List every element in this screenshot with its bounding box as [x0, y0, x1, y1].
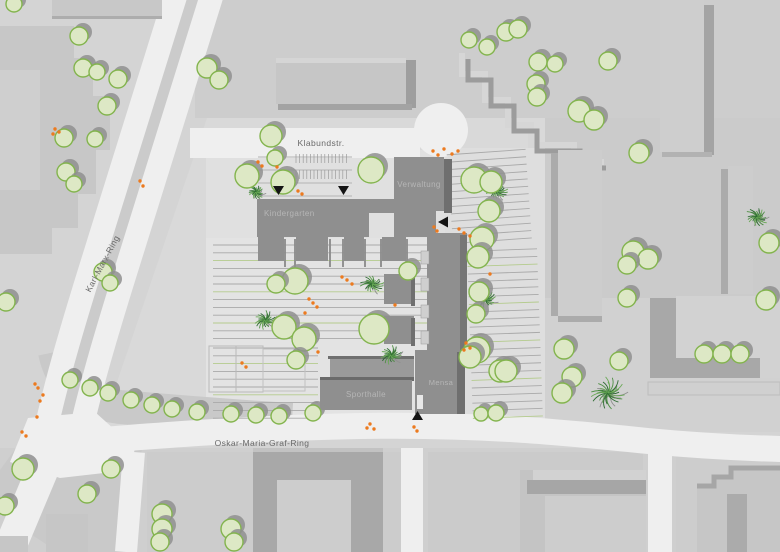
person-dot: [435, 229, 438, 232]
context-building-u-court: [277, 480, 351, 552]
person-dot: [393, 303, 396, 306]
person-dot: [368, 422, 371, 425]
person-dot: [38, 399, 41, 402]
context-building-south-right-wing: [727, 494, 747, 552]
person-dot: [457, 227, 460, 230]
site-plan-svg: Kindergarten Verwaltung Sporthalle Mensa…: [0, 0, 780, 552]
person-dot: [296, 189, 299, 192]
building-sporthalle-edge: [328, 356, 414, 359]
context-building-west-court: [0, 70, 40, 190]
person-dot: [20, 430, 23, 433]
building-label-sporthalle: Sporthalle: [346, 390, 386, 399]
person-dot: [138, 179, 141, 182]
person-dot: [311, 301, 314, 304]
person-dot: [51, 132, 54, 135]
person-dot: [345, 278, 348, 281]
context-building-top-left: [52, 0, 162, 16]
person-dot: [415, 429, 418, 432]
pavilion: [344, 237, 364, 261]
person-dot: [240, 361, 243, 364]
building-label-verwaltung: Verwaltung: [397, 180, 441, 189]
person-dot: [365, 426, 368, 429]
street-south-vertical-1: [401, 448, 423, 552]
person-dot: [41, 393, 44, 396]
context-building-south-mid-roofedge: [533, 470, 646, 480]
pavilion: [382, 237, 406, 261]
person-dot: [431, 149, 434, 152]
context-building-top-left-shadow: [52, 16, 162, 19]
building-verwaltung-sideface: [444, 159, 452, 213]
person-dot: [141, 184, 144, 187]
person-dot: [468, 346, 471, 349]
site-plan: Kindergarten Verwaltung Sporthalle Mensa…: [0, 0, 780, 552]
building-bridge: [350, 199, 396, 213]
person-dot: [488, 272, 491, 275]
context-building-sw-2: [0, 536, 28, 552]
context-building-u-roofedge: [253, 448, 383, 452]
building-mensa-entrance-recess: [417, 395, 423, 409]
context-building-north-slab: [276, 58, 406, 104]
context-building-north-slab-sideface: [406, 60, 416, 108]
street-klabundstr-turnaround: [414, 103, 468, 157]
person-dot: [244, 365, 247, 368]
person-dot: [300, 192, 303, 195]
person-dot: [36, 386, 39, 389]
person-dot: [33, 382, 36, 385]
person-dot: [24, 434, 27, 437]
person-dot: [260, 164, 263, 167]
person-dot: [53, 127, 56, 130]
context-building-north-slab-shadow: [278, 104, 412, 110]
person-dot: [412, 425, 415, 428]
street-label-klabundstr: Klabundstr.: [298, 138, 345, 148]
person-dot: [462, 231, 465, 234]
street-label-oskar-maria-graf-ring: Oskar-Maria-Graf-Ring: [215, 438, 310, 448]
context-building-south-mid-shadow: [527, 480, 646, 494]
person-dot: [372, 427, 375, 430]
context-building-mid-slab-shadow: [551, 153, 558, 316]
person-dot: [307, 297, 310, 300]
building-label-kindergarten: Kindergarten: [264, 209, 315, 218]
building-side-room-1-shadow: [411, 276, 415, 306]
person-dot: [340, 275, 343, 278]
pavilion: [258, 237, 284, 261]
person-dot: [57, 130, 60, 133]
context-terrace-wall-east: [648, 382, 780, 395]
person-dot: [468, 234, 471, 237]
context-building-right-slab-shadow: [721, 169, 728, 294]
context-building-mid-slab-bottom-shadow: [558, 316, 602, 322]
context-building-ne-slab-shadow: [704, 5, 714, 155]
building-side-room-2-shadow: [411, 318, 415, 346]
person-dot: [316, 350, 319, 353]
building-sporthalle-roofstep: [330, 356, 414, 380]
person-dot: [275, 165, 278, 168]
pavilion: [296, 237, 328, 261]
street-south-vertical-2: [648, 445, 672, 552]
person-dot: [450, 152, 453, 155]
building-label-mensa: Mensa: [429, 378, 454, 387]
person-dot: [35, 415, 38, 418]
person-dot: [303, 311, 306, 314]
person-dot: [256, 160, 259, 163]
person-dot: [315, 305, 318, 308]
street-south-branch: [126, 452, 134, 552]
context-building-mid-slab: [558, 150, 602, 316]
context-building-ne-slab-bottom-shadow: [662, 152, 712, 157]
context-building-sw-1: [46, 514, 88, 552]
context-building-right-slab: [728, 166, 753, 294]
person-dot: [442, 147, 445, 150]
person-dot: [464, 341, 467, 344]
person-dot: [462, 348, 465, 351]
person-dot: [436, 153, 439, 156]
person-dot: [456, 149, 459, 152]
person-dot: [350, 282, 353, 285]
person-dot: [432, 225, 435, 228]
context-building-south-mid-court: [545, 496, 646, 552]
context-building-north-slab-roofedge: [276, 58, 406, 63]
context-building-ne-slab: [660, 0, 704, 152]
